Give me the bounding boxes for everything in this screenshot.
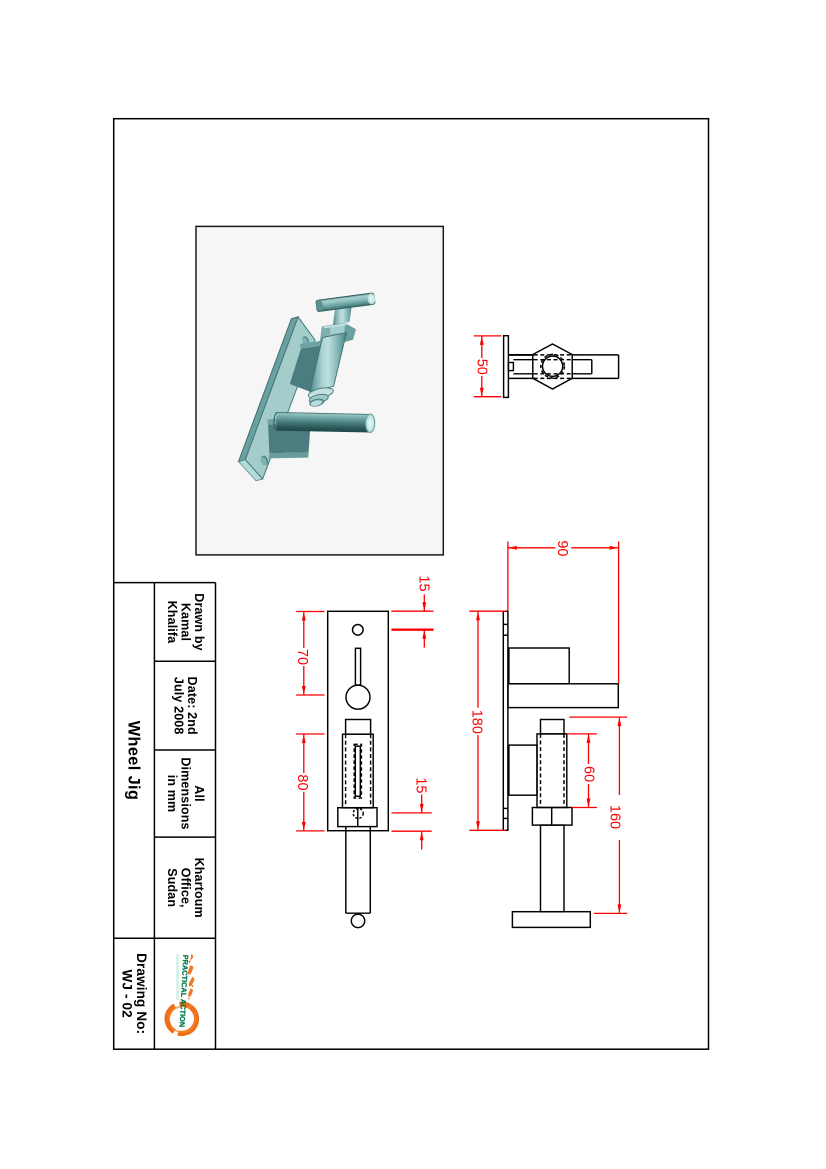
svg-text:50: 50 (473, 359, 489, 375)
svg-text:Sudan: Sudan (165, 868, 179, 907)
svg-text:Khalifa: Khalifa (165, 601, 179, 645)
svg-text:July 2008: July 2008 (172, 677, 186, 735)
svg-text:All: All (192, 785, 206, 801)
svg-text:Drawing No:: Drawing No: (134, 953, 149, 1034)
svg-text:WJ - 02: WJ - 02 (120, 970, 135, 1018)
svg-text:70: 70 (294, 649, 310, 665)
svg-text:15: 15 (415, 575, 431, 591)
svg-text:Wheel Jig: Wheel Jig (125, 721, 143, 801)
svg-text:60: 60 (580, 766, 596, 782)
svg-text:Date: 2nd: Date: 2nd (185, 677, 199, 735)
svg-text:160: 160 (607, 805, 623, 829)
svg-text:Drawn by: Drawn by (192, 593, 206, 650)
svg-text:80: 80 (294, 774, 310, 790)
svg-text:180: 180 (469, 710, 485, 734)
svg-text:Dimensions: Dimensions (179, 757, 193, 829)
svg-text:Kamal: Kamal (179, 603, 193, 641)
svg-text:Office,: Office, (179, 868, 193, 908)
svg-text:in mm: in mm (165, 775, 179, 813)
svg-text:15: 15 (413, 777, 429, 793)
svg-text:90: 90 (554, 540, 570, 556)
svg-text:Khartoum: Khartoum (192, 858, 206, 918)
